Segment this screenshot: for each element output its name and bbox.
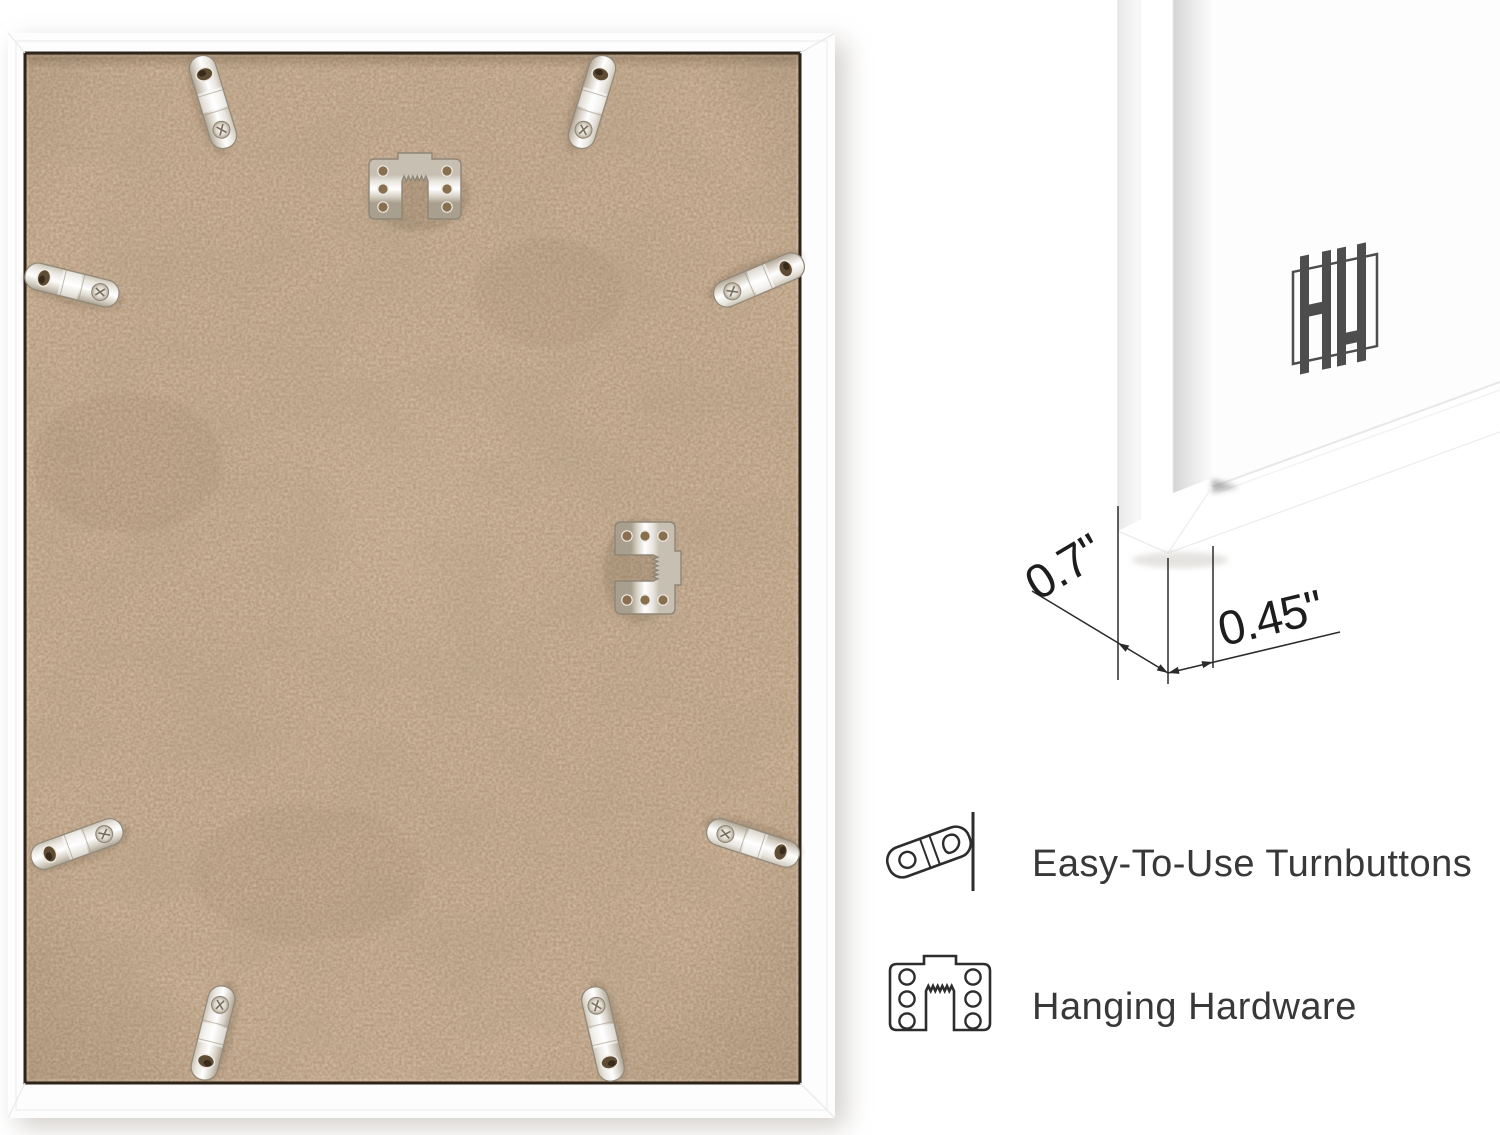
frame-back-photo <box>8 33 835 1118</box>
hanging-hardware-icon <box>888 948 992 1042</box>
feature-label-turnbuttons: Easy-To-Use Turnbuttons <box>1032 843 1472 887</box>
sawtooth-hanger-middle <box>603 519 681 623</box>
dimension-label-depth: 0.7" <box>1016 524 1112 611</box>
turnbutton-icon <box>885 810 985 894</box>
frame-back-photo-canvas <box>8 33 835 1118</box>
sawtooth-hanger-top <box>366 153 470 231</box>
dimension-label-face-width: 0.45" <box>1213 581 1328 657</box>
product-image: 0.7" 0.45" Easy-To-Use Turnbuttons Hangi… <box>0 0 1500 1135</box>
dimension-arrows <box>1116 640 1214 677</box>
frame-corner-canvas: 0.7" 0.45" <box>1000 0 1500 700</box>
feature-label-hanging-hardware: Hanging Hardware <box>1032 986 1357 1030</box>
frame-inner-shadow <box>1173 0 1212 493</box>
frame-corner-photo: 0.7" 0.45" <box>1000 0 1500 700</box>
frame-left-rail <box>1118 0 1173 553</box>
hanger-body <box>890 956 990 1030</box>
